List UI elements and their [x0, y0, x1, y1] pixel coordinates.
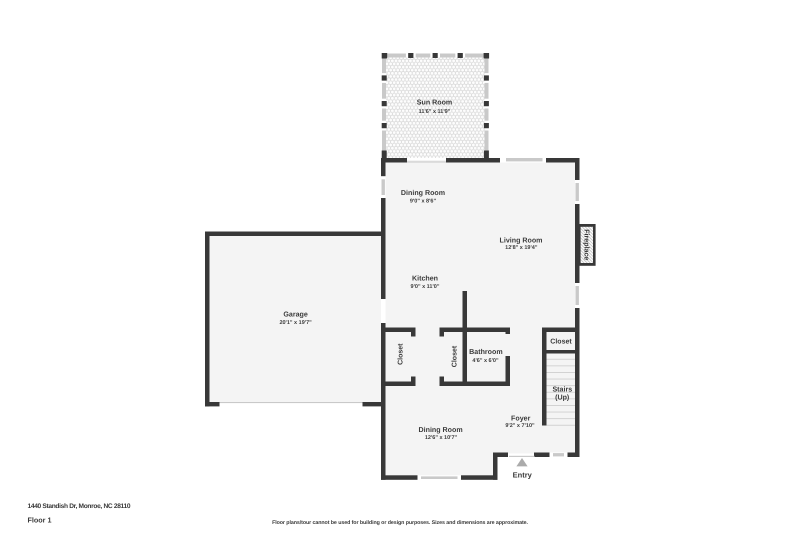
svg-text:4'6" x 6'0": 4'6" x 6'0" [472, 358, 499, 364]
svg-text:Fireplace: Fireplace [582, 229, 590, 260]
svg-text:Dining Room: Dining Room [401, 189, 445, 197]
svg-text:20'1" x 19'7": 20'1" x 19'7" [279, 320, 312, 326]
svg-text:9'0" x 11'0": 9'0" x 11'0" [411, 284, 440, 290]
svg-text:Entry: Entry [513, 470, 533, 479]
svg-text:(Up): (Up) [555, 394, 570, 402]
svg-text:Dining Room: Dining Room [419, 426, 463, 434]
svg-text:Bathroom: Bathroom [469, 348, 503, 356]
svg-text:Sun Room: Sun Room [417, 99, 452, 107]
svg-text:Living Room: Living Room [500, 236, 543, 244]
svg-text:11'6" x 11'9": 11'6" x 11'9" [419, 109, 451, 115]
svg-text:12'8" x 19'4": 12'8" x 19'4" [505, 245, 538, 251]
svg-text:1440 Standish Dr, Monroe, NC 2: 1440 Standish Dr, Monroe, NC 28110 [28, 503, 131, 510]
svg-text:9'0" x 8'6": 9'0" x 8'6" [410, 199, 437, 205]
svg-text:9'2" x 7'10": 9'2" x 7'10" [505, 423, 535, 429]
svg-text:Garage: Garage [283, 311, 308, 319]
svg-text:Closet: Closet [396, 343, 404, 365]
svg-text:Floor plans/tour cannot be use: Floor plans/tour cannot be used for buil… [272, 520, 528, 526]
svg-text:Closet: Closet [450, 345, 458, 367]
svg-text:Kitchen: Kitchen [412, 274, 438, 282]
svg-text:12'6" x 10'7": 12'6" x 10'7" [425, 435, 458, 441]
svg-text:Floor 1: Floor 1 [28, 516, 52, 525]
svg-text:Stairs: Stairs [552, 386, 572, 394]
svg-text:Foyer: Foyer [511, 415, 531, 423]
svg-text:Closet: Closet [550, 337, 572, 345]
